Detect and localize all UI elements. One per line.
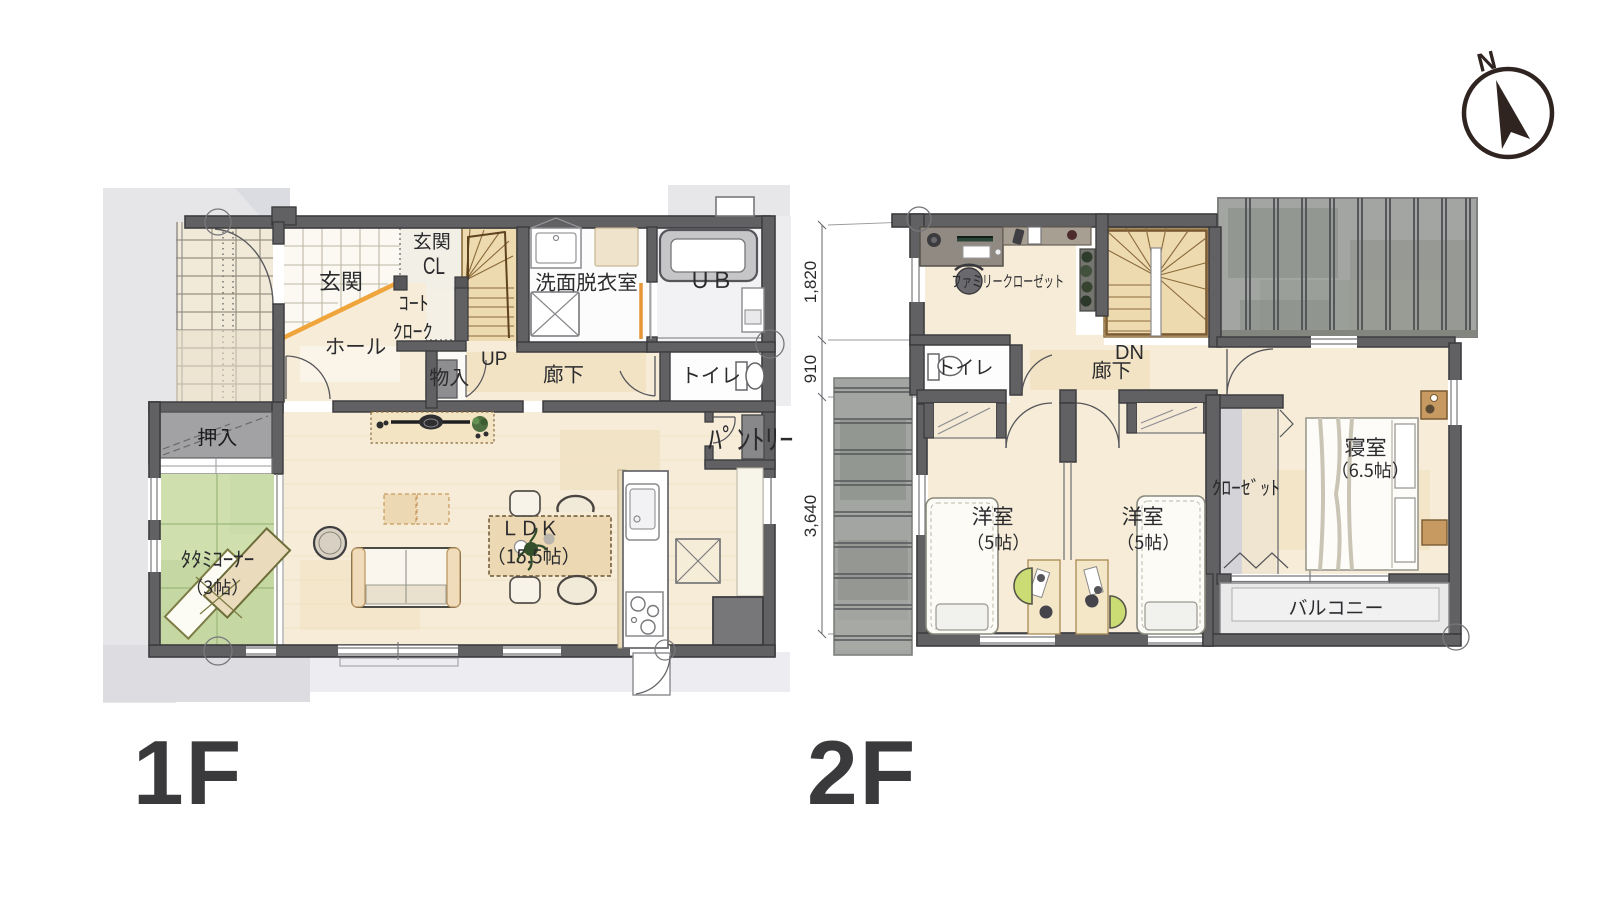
svg-text:2F: 2F	[807, 723, 917, 824]
svg-text:UP: UP	[481, 349, 507, 370]
svg-text:1,820: 1,820	[801, 261, 820, 304]
svg-text:DN: DN	[1115, 342, 1144, 364]
svg-text:910: 910	[801, 355, 820, 383]
svg-text:CL: CL	[423, 253, 445, 280]
svg-text:3,640: 3,640	[801, 495, 820, 538]
svg-text:1F: 1F	[133, 723, 243, 824]
